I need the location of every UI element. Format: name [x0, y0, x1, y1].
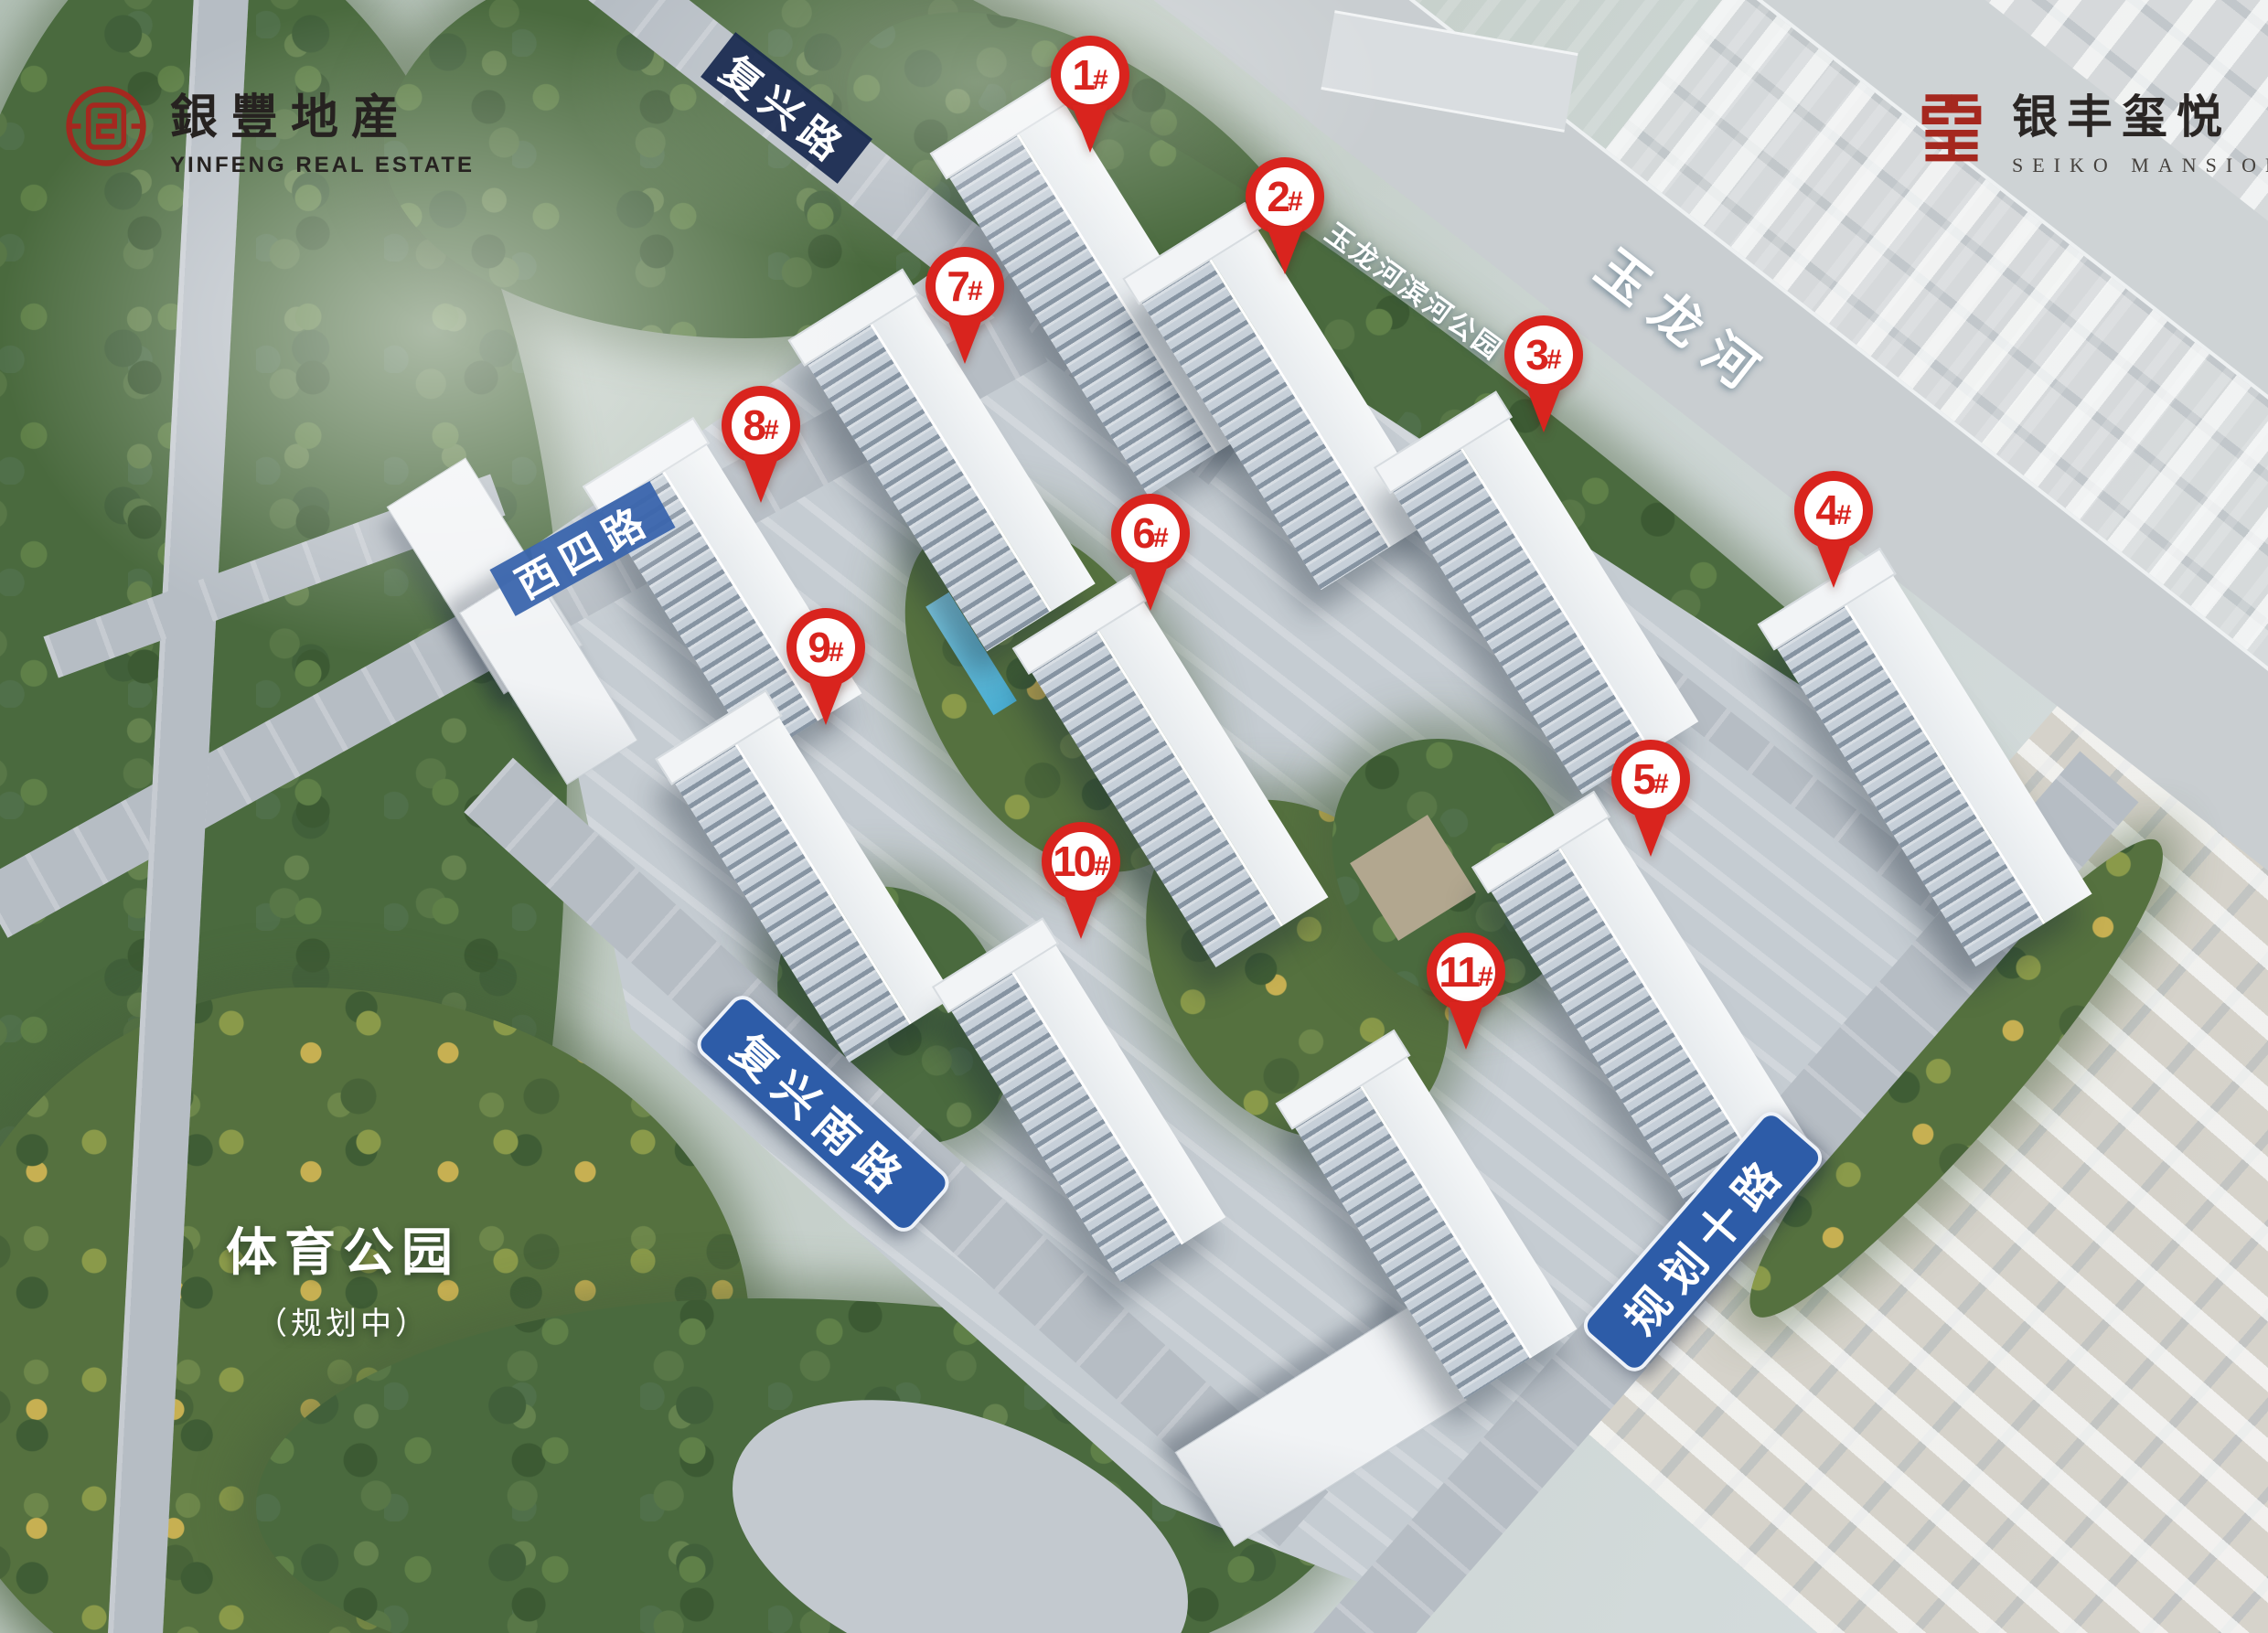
marker-number: 10 — [1053, 840, 1094, 882]
marker-number: 11 — [1439, 951, 1478, 993]
building-marker-6[interactable]: 6# — [1111, 494, 1190, 611]
marker-bubble: 6# — [1111, 494, 1190, 572]
marker-pointer-icon — [1132, 563, 1169, 611]
marker-pointer-icon — [808, 678, 844, 725]
marker-hash: # — [1094, 853, 1109, 881]
marker-number: 8 — [743, 404, 764, 446]
sports-park-status: （规划中） — [226, 1298, 460, 1343]
marker-hash: # — [1153, 525, 1169, 552]
marker-bubble: 3# — [1504, 315, 1583, 394]
marker-number: 7 — [947, 265, 968, 307]
yinfeng-seal-icon — [64, 84, 148, 173]
marker-pointer-icon — [1448, 1002, 1484, 1050]
developer-name-cn: 銀豐地産 — [170, 79, 475, 147]
marker-hash: # — [764, 417, 779, 444]
marker-pointer-icon — [1267, 227, 1303, 274]
marker-hash: # — [1836, 502, 1852, 529]
marker-number: 5 — [1632, 758, 1653, 800]
building-marker-8[interactable]: 8# — [722, 386, 800, 503]
marker-hash: # — [829, 639, 844, 667]
marker-hash: # — [1288, 188, 1303, 216]
marker-pointer-icon — [1815, 540, 1852, 588]
marker-hash: # — [1478, 964, 1493, 991]
marker-bubble: 8# — [722, 386, 800, 464]
marker-pointer-icon — [1525, 385, 1562, 432]
marker-pointer-icon — [947, 316, 983, 364]
marker-bubble: 5# — [1611, 740, 1690, 818]
marker-hash: # — [1093, 67, 1108, 94]
marker-hash: # — [968, 278, 983, 305]
marker-pointer-icon — [1072, 105, 1108, 153]
marker-number: 3 — [1525, 334, 1546, 376]
aerial-master-plan: 复兴路 西四路 复兴南路 规划十路 玉龙河 玉龙河滨河公园 体育公园 （规划中）… — [0, 0, 2268, 1633]
building-marker-7[interactable]: 7# — [925, 247, 1004, 364]
marker-bubble: 1# — [1051, 36, 1129, 114]
building-marker-1[interactable]: 1# — [1051, 36, 1129, 153]
marker-hash: # — [1546, 347, 1562, 374]
developer-logo: 銀豐地産 YINFENG REAL ESTATE — [64, 79, 475, 178]
building-marker-5[interactable]: 5# — [1611, 740, 1690, 857]
project-logo: 银丰玺悦 SEIKO MANSION — [1913, 80, 2268, 177]
marker-number: 9 — [808, 626, 829, 668]
marker-number: 6 — [1132, 512, 1153, 554]
marker-pointer-icon — [743, 455, 779, 503]
marker-bubble: 4# — [1794, 471, 1873, 550]
building-marker-4[interactable]: 4# — [1794, 471, 1873, 588]
building-marker-2[interactable]: 2# — [1246, 157, 1324, 274]
building-marker-11[interactable]: 11# — [1427, 933, 1505, 1050]
building-marker-3[interactable]: 3# — [1504, 315, 1583, 432]
project-name-cn: 银丰玺悦 — [2012, 80, 2268, 146]
marker-number: 1 — [1072, 54, 1093, 96]
developer-name-en: YINFENG REAL ESTATE — [170, 153, 475, 178]
marker-pointer-icon — [1632, 809, 1669, 857]
marker-bubble: 9# — [786, 608, 865, 687]
building-marker-10[interactable]: 10# — [1042, 822, 1120, 939]
marker-bubble: 10# — [1042, 822, 1120, 901]
project-name-en: SEIKO MANSION — [2012, 154, 2268, 177]
marker-number: 4 — [1815, 489, 1836, 531]
building-marker-9[interactable]: 9# — [786, 608, 865, 725]
sports-park-name: 体育公园 — [226, 1211, 460, 1286]
marker-hash: # — [1653, 771, 1669, 798]
marker-number: 2 — [1267, 176, 1288, 218]
marker-bubble: 7# — [925, 247, 1004, 326]
marker-bubble: 2# — [1246, 157, 1324, 236]
marker-bubble: 11# — [1427, 933, 1505, 1011]
marker-pointer-icon — [1063, 891, 1099, 939]
seiko-mansion-seal-icon — [1913, 89, 1990, 170]
sports-park-label: 体育公园 （规划中） — [226, 1211, 460, 1343]
